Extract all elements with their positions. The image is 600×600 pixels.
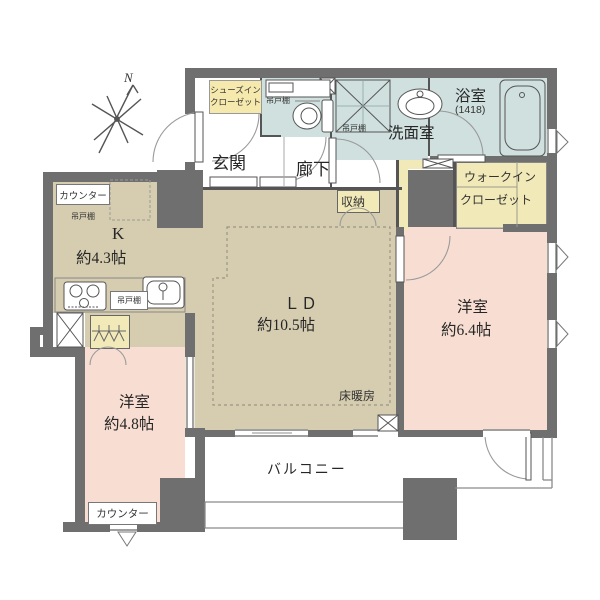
toilet-counter-shelf (269, 83, 293, 92)
stove (64, 282, 106, 310)
living-dining-name: ＬＤ (284, 290, 318, 314)
refrigerator-space (110, 180, 150, 220)
washbasin-bowl (406, 98, 434, 115)
floor-heating-label: 床暖房 (339, 387, 375, 404)
closet-door-arc-left (90, 347, 108, 365)
shoes-in-closet-label-box: シューズイン クローゼット (209, 80, 262, 114)
counter-label: カウンター (59, 188, 107, 202)
bedroom-south-name: 洋室 (119, 390, 150, 412)
entrance-sliding-panel-1 (210, 177, 257, 187)
hanging-cupboard-label: 吊戸棚 (71, 211, 95, 222)
balcony-door-arc (485, 434, 530, 479)
shoes-in-closet-line2: クローゼット (210, 97, 261, 109)
hanging-cupboard-label-box: 吊戸棚 (110, 291, 148, 310)
bedroom-east-size: 約6.4帖 (441, 318, 491, 340)
floor-plan: カウンター 吊戸棚 カウンター シューズイン クローゼット N K 約4.3帖 … (0, 0, 600, 600)
vent-triangle-window2 (557, 322, 568, 346)
bedroom-east-name: 洋室 (457, 295, 488, 317)
corridor-label: 廊下 (296, 155, 330, 180)
kitchen-name: K (112, 224, 124, 244)
hanging-cupboard-label: 吊戸棚 (266, 95, 290, 106)
closet-door-arc-right (108, 347, 126, 365)
living-dining-size: 約10.5帖 (257, 313, 315, 335)
storage-door-arc-right (358, 208, 376, 226)
counter-label-box: カウンター (56, 184, 110, 205)
hanging-cupboard-label: 吊戸棚 (342, 123, 366, 134)
compass-north-label: N (124, 70, 133, 86)
washroom-door-leaf (329, 138, 336, 183)
walk-in-closet-line2: クローゼット (460, 191, 532, 208)
vent-triangle-bath (557, 131, 568, 153)
storage-door-arc-left (340, 208, 358, 226)
washroom-door-arc (336, 139, 380, 183)
north-arrow-icon (92, 85, 143, 153)
hanging-cupboard-label: 吊戸棚 (117, 295, 141, 306)
kitchen-size: 約4.3帖 (76, 246, 126, 268)
vent-triangle-window1 (557, 245, 568, 269)
toilet-bowl-inner (301, 108, 317, 124)
entrance-sliding-panel-2 (260, 177, 296, 187)
balcony-door-leaf (526, 433, 531, 480)
washroom-label: 洗面室 (388, 121, 435, 143)
balcony-label: バルコニー (267, 459, 347, 479)
bathroom-label: 浴室 (455, 84, 486, 106)
bedroom-east-door-leaf (396, 236, 404, 282)
storage-closet-label: 収納 (341, 193, 365, 210)
entrance-label: 玄関 (212, 149, 246, 174)
hanger-hooks (99, 325, 119, 331)
counter-label: カウンター (96, 506, 149, 521)
bedroom-south-size: 約4.8帖 (104, 412, 154, 434)
counter-label-box: カウンター (88, 502, 157, 525)
bathroom-size: (1418) (455, 104, 485, 116)
bedroom-east-door-arc (406, 236, 450, 280)
vent-triangle-south (118, 532, 136, 546)
washbasin-faucet (417, 91, 423, 97)
shoes-in-closet-line1: シューズイン (210, 85, 261, 97)
bathroom-door-arc (438, 111, 483, 156)
hanger-icon (94, 331, 124, 341)
walk-in-closet-line1: ウォークイン (464, 168, 536, 185)
toilet-tank (322, 100, 333, 132)
front-door-leaf (195, 112, 203, 162)
